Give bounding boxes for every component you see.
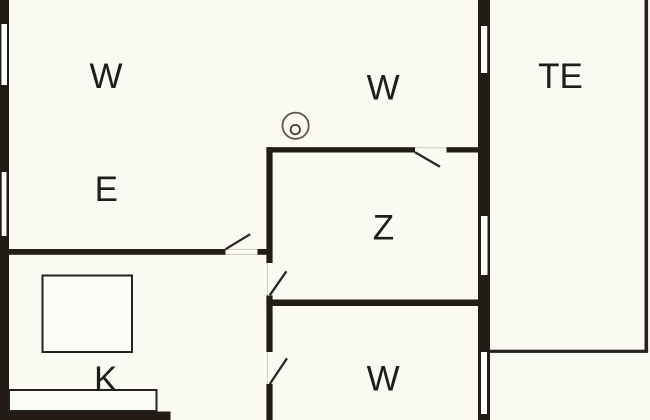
svg-text:K: K	[94, 360, 117, 399]
svg-text:TE: TE	[538, 57, 583, 96]
svg-text:Z: Z	[373, 209, 394, 248]
svg-text:W: W	[367, 360, 400, 399]
svg-text:E: E	[95, 170, 118, 209]
svg-text:W: W	[89, 57, 122, 96]
svg-text:W: W	[367, 69, 400, 108]
